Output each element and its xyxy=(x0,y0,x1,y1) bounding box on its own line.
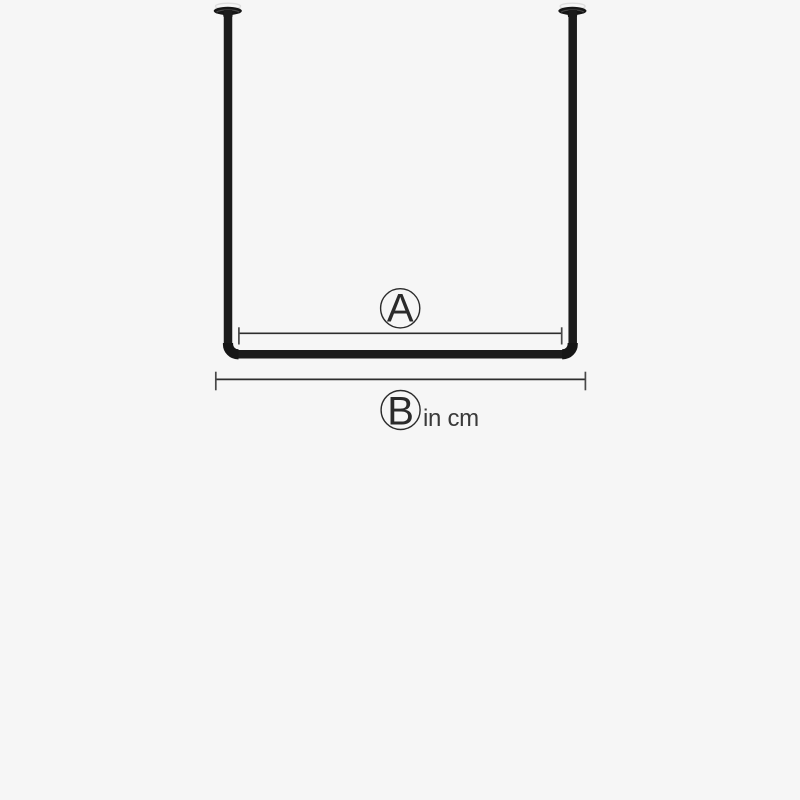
svg-text:B: B xyxy=(387,390,414,434)
svg-text:in cm: in cm xyxy=(423,405,479,432)
svg-text:A: A xyxy=(387,286,414,330)
